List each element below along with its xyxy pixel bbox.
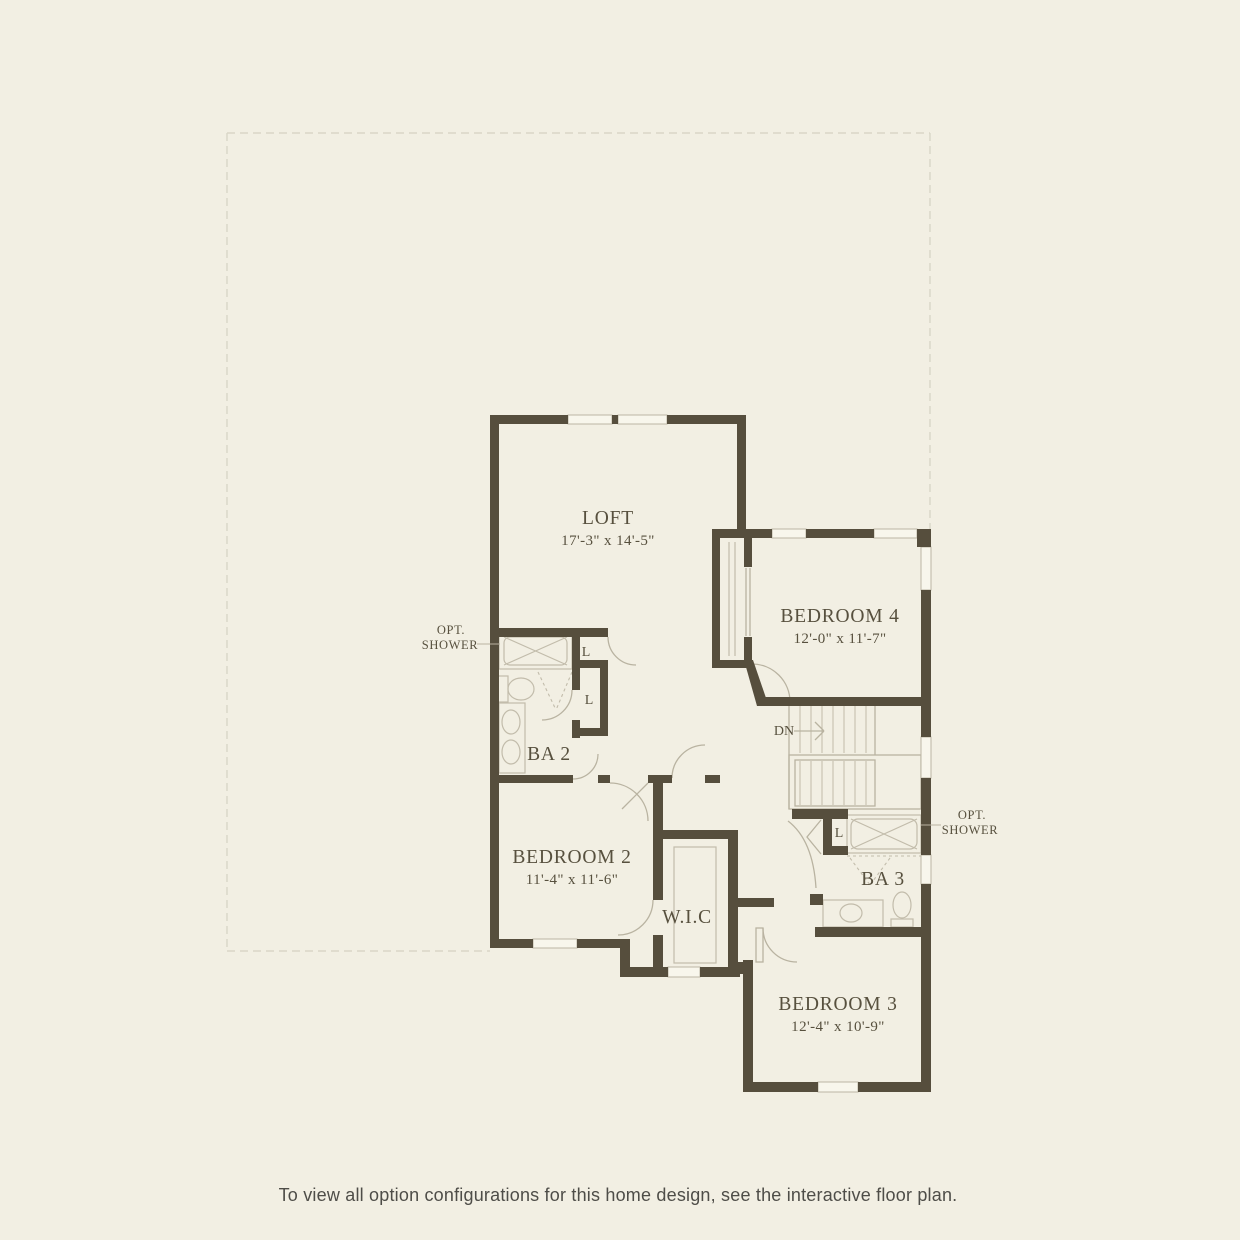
opt-shower-left-line1: OPT.: [437, 623, 465, 637]
door-leaf: [756, 928, 763, 962]
bedroom3-dims: 12'-4" x 10'-9": [791, 1019, 885, 1035]
bedroom2-dims: 11'-4" x 11'-6": [526, 872, 619, 888]
room-labels: LOFT 17'-3" x 14'-5" BEDROOM 4 12'-0" x …: [512, 508, 905, 1035]
bedroom4-dims: 12'-0" x 11'-7": [793, 631, 886, 647]
bedroom4-label: BEDROOM 4: [780, 606, 899, 627]
vanity-sinks-icon: [499, 703, 525, 773]
linen-label-2: L: [585, 693, 594, 708]
bifold-door: [807, 820, 821, 854]
loft-dims: 17'-3" x 14'-5": [561, 533, 655, 549]
bathtub-icon: [499, 633, 572, 710]
toilet-icon: [891, 892, 913, 927]
floor-plan-page: LOFT 17'-3" x 14'-5" BEDROOM 4 12'-0" x …: [0, 0, 1240, 1240]
opt-shower-left-line2: SHOWER: [422, 638, 478, 652]
toilet-icon: [498, 676, 534, 702]
bedroom3-label: BEDROOM 3: [778, 994, 897, 1015]
linen-label-3: L: [835, 826, 844, 841]
floor-plan-svg: LOFT 17'-3" x 14'-5" BEDROOM 4 12'-0" x …: [0, 0, 1240, 1240]
bath3-label: BA 3: [861, 869, 905, 890]
leader-lines: [477, 644, 941, 825]
vanity-sink-icon: [823, 900, 883, 927]
bedroom2-label: BEDROOM 2: [512, 847, 631, 868]
linen-label-1: L: [582, 645, 591, 660]
annotations: DN L L L OPT. SHOWER OPT. SHOWER: [422, 623, 998, 841]
wic-label: W.I.C: [662, 907, 712, 928]
opt-shower-right-line2: SHOWER: [942, 823, 998, 837]
down-label: DN: [774, 724, 794, 739]
opt-shower-right-line1: OPT.: [958, 808, 986, 822]
down-arrow-icon: [794, 722, 824, 740]
caption: To view all option configurations for th…: [279, 1185, 958, 1205]
bath2-label: BA 2: [527, 744, 571, 765]
stairs: [789, 706, 921, 809]
wic-shelving: [674, 847, 716, 963]
loft-label: LOFT: [582, 508, 634, 529]
